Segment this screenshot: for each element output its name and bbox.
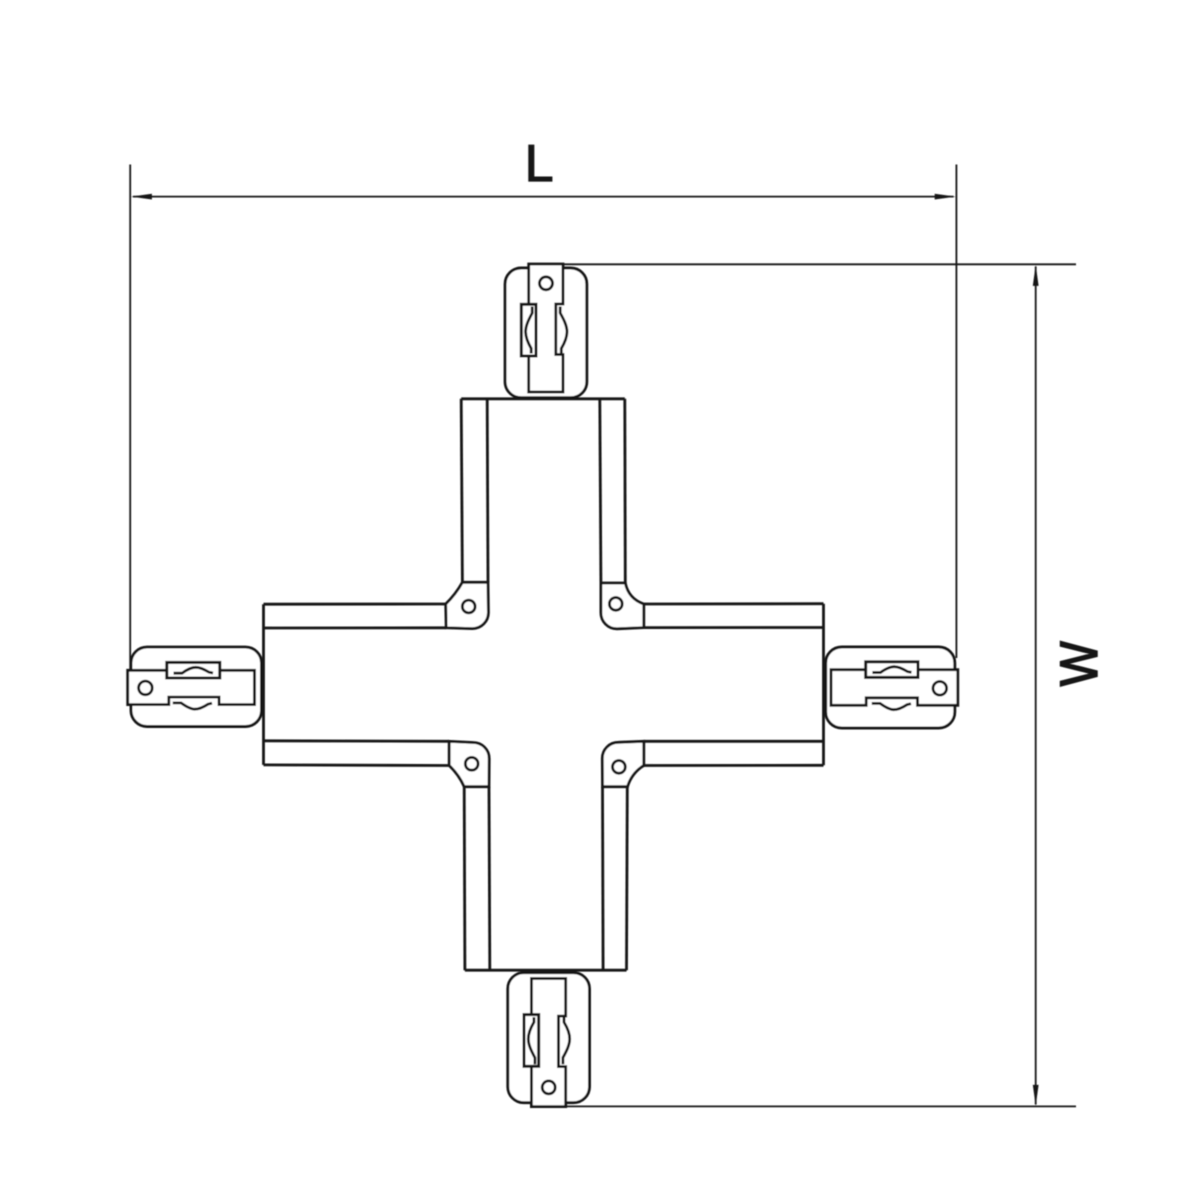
svg-text:W: W: [1050, 641, 1109, 686]
svg-text:L: L: [525, 135, 554, 193]
